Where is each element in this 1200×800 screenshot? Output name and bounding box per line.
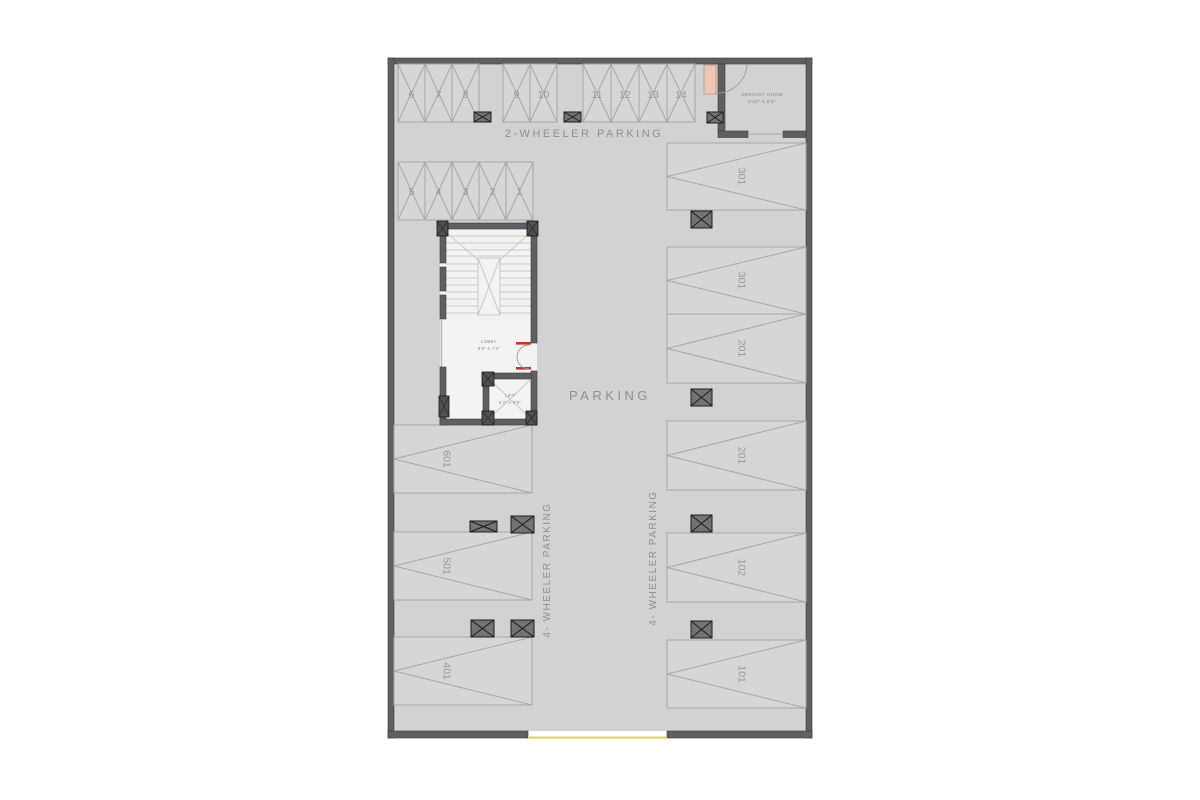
4w-slot-number: 301 — [736, 272, 748, 290]
servant-room-size: 9'10" X 8'8" — [748, 99, 776, 105]
lobby-size: 9'8" X 7'4" — [478, 346, 500, 351]
2w-slot-number: 13 — [647, 89, 659, 101]
floor-plan-canvas: 6 7 8 9 10 11 12 13 14 5 4 3 2 1 2-WHEEL… — [0, 0, 1200, 800]
wall-top — [388, 58, 812, 64]
core-column — [527, 221, 538, 236]
column-marker — [474, 112, 491, 122]
core-column — [437, 221, 448, 236]
2w-slot-number: 8 — [463, 89, 469, 101]
core-column — [482, 411, 494, 425]
four-wheeler-left-column: 601 501 401 — [394, 425, 532, 705]
4w-slot — [394, 637, 532, 705]
2w-slot-number: 6 — [409, 89, 415, 101]
4w-slot — [394, 425, 532, 493]
4w-slot-number: 201 — [736, 340, 748, 358]
4w-slot-number: 401 — [441, 662, 453, 680]
column-marker — [511, 516, 534, 533]
four-wheeler-label-left: 4- WHEELER PARKING — [542, 502, 553, 637]
lift-name: LIFT — [505, 393, 515, 398]
four-wheeler-label-right: 4- WHEELER PARKING — [648, 490, 659, 625]
2w-slot-number: 9 — [514, 89, 520, 101]
two-wheeler-row2: 5 4 3 2 1 — [398, 162, 533, 220]
2w-slot-number: 3 — [463, 186, 469, 198]
4w-slot — [394, 532, 532, 600]
column-marker — [691, 621, 712, 638]
servant-room-name: SERVANT ROOM — [741, 92, 783, 98]
column-marker — [470, 521, 497, 532]
entry-threshold-line — [528, 737, 667, 739]
servant-door-leaf — [704, 65, 716, 94]
2w-slot-number: 7 — [436, 89, 442, 101]
2w-slot-number: 12 — [619, 89, 631, 101]
2w-slot-number: 10 — [538, 89, 550, 101]
column-marker — [564, 112, 581, 122]
lobby-name: LOBBY — [481, 339, 497, 344]
column-marker — [691, 389, 712, 406]
stair-core: LOBBY 9'8" X 7'4" LIFT 5'2" X 5'9" — [437, 221, 538, 425]
two-wheeler-row1: 6 7 8 9 10 11 12 13 14 — [398, 64, 695, 122]
4w-slot-number: 501 — [441, 557, 453, 575]
lift-size: 5'2" X 5'9" — [499, 400, 521, 405]
column-marker — [511, 620, 534, 637]
2w-slot-number: 1 — [517, 186, 523, 198]
column-marker — [691, 515, 712, 532]
core-column — [439, 396, 449, 417]
4w-slot-number: 102 — [736, 559, 748, 577]
servant-wall-bottom-b — [783, 131, 806, 138]
column-marker — [471, 620, 494, 637]
2w-slot-number: 14 — [675, 89, 687, 101]
core-column — [526, 411, 537, 425]
4w-slot-number: 201 — [736, 447, 748, 465]
column-marker — [707, 112, 723, 123]
4w-slot-number: 101 — [736, 665, 748, 683]
core-column — [482, 372, 494, 386]
servant-wall-bottom-a — [718, 131, 748, 138]
2w-slot-number: 4 — [436, 186, 442, 198]
wall-right — [806, 58, 812, 738]
wall-bottom-right — [667, 731, 812, 738]
4w-slot-number: 601 — [441, 450, 453, 468]
2w-slot-number: 2 — [490, 186, 496, 198]
parking-label: PARKING — [569, 388, 651, 403]
4w-slot-number: 301 — [736, 168, 748, 186]
column-marker — [691, 211, 712, 228]
two-wheeler-parking-label: 2-WHEELER PARKING — [505, 128, 663, 140]
2w-slot-number: 11 — [592, 89, 603, 101]
wall-bottom-left — [388, 731, 528, 738]
wall-left — [388, 58, 394, 738]
2w-slot-number: 5 — [409, 186, 415, 198]
